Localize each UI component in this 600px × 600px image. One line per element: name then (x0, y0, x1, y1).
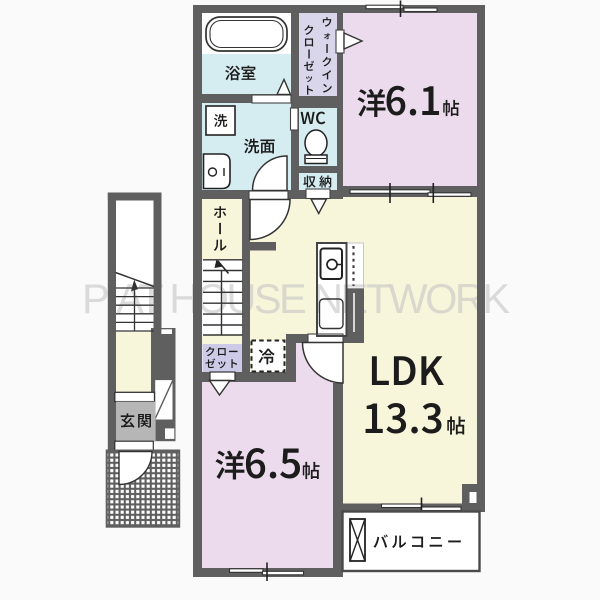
svg-text:PIAT HOUSE NETWORK: PIAT HOUSE NETWORK (82, 275, 510, 322)
